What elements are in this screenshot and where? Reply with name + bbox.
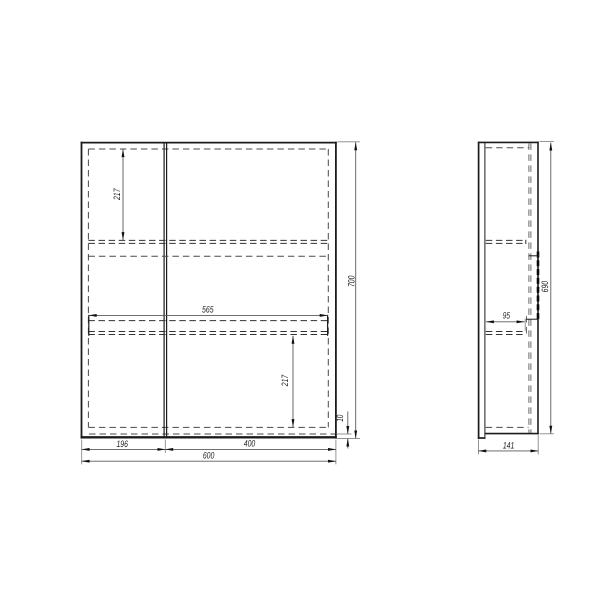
svg-text:10: 10	[335, 414, 345, 422]
svg-text:95: 95	[503, 311, 511, 321]
svg-text:700: 700	[347, 275, 357, 287]
svg-text:690: 690	[540, 280, 550, 292]
svg-text:565: 565	[202, 304, 214, 314]
svg-text:141: 141	[503, 440, 515, 450]
svg-text:600: 600	[203, 450, 215, 460]
svg-text:400: 400	[244, 439, 256, 449]
svg-text:217: 217	[280, 374, 290, 387]
svg-text:196: 196	[116, 439, 128, 449]
svg-text:217: 217	[112, 188, 122, 201]
